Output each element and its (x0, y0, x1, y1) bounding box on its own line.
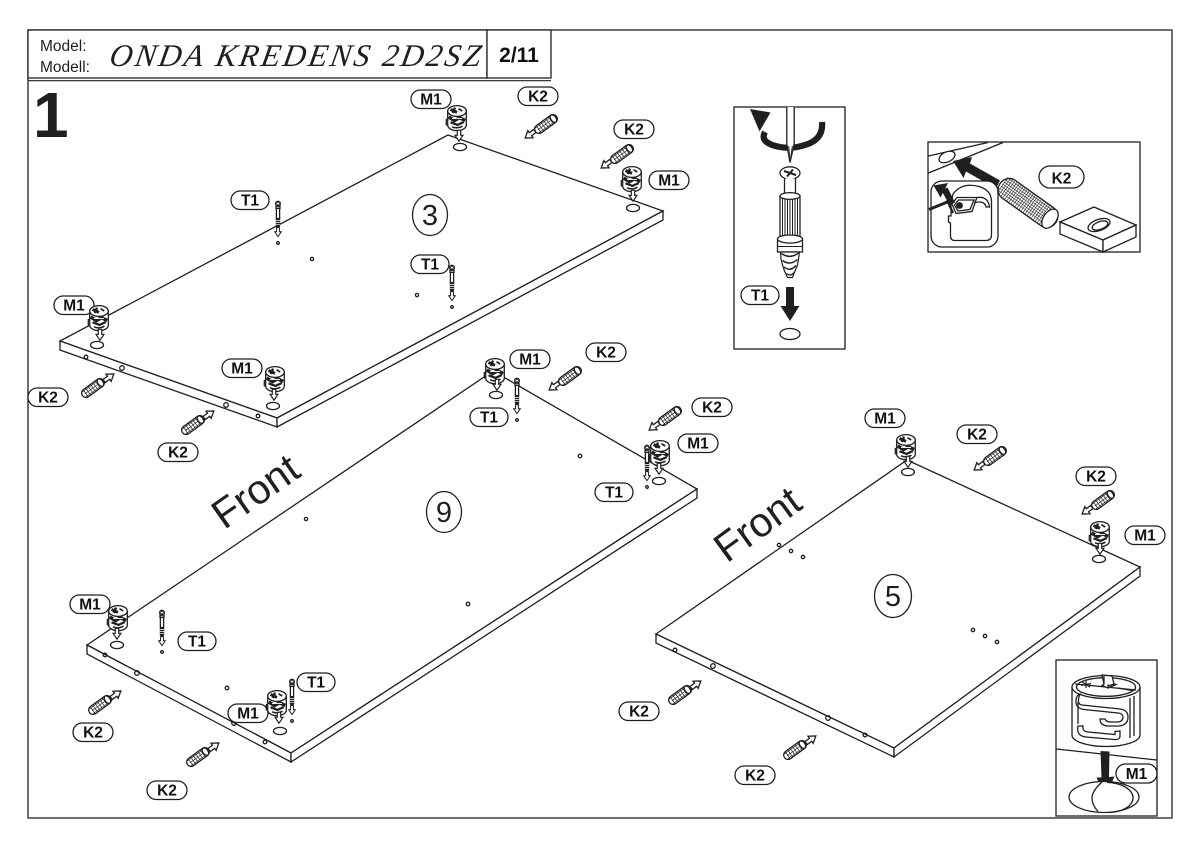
svg-text:K2: K2 (168, 445, 188, 462)
svg-text:M1: M1 (63, 298, 85, 315)
svg-text:K2: K2 (745, 768, 765, 785)
svg-text:M1: M1 (1134, 528, 1156, 545)
svg-text:T1: T1 (751, 288, 769, 305)
svg-text:M1: M1 (874, 411, 896, 428)
svg-text:M1: M1 (687, 436, 709, 453)
svg-text:K2: K2 (702, 400, 722, 417)
svg-text:M1: M1 (519, 352, 541, 369)
svg-text:T1: T1 (241, 193, 259, 210)
svg-text:K2: K2 (528, 89, 548, 106)
svg-text:K2: K2 (157, 783, 177, 800)
svg-text:T1: T1 (307, 675, 325, 692)
svg-text:5: 5 (885, 581, 901, 613)
svg-text:K2: K2 (967, 427, 987, 444)
svg-text:M1: M1 (1126, 766, 1148, 783)
svg-text:M1: M1 (658, 173, 680, 190)
svg-text:K2: K2 (1052, 171, 1072, 188)
svg-text:K2: K2 (629, 704, 649, 721)
svg-text:M1: M1 (231, 361, 253, 378)
svg-text:T1: T1 (421, 257, 439, 274)
svg-text:M1: M1 (79, 597, 101, 614)
svg-text:M1: M1 (420, 92, 442, 109)
svg-text:2/11: 2/11 (499, 44, 539, 67)
svg-text:K2: K2 (38, 390, 58, 407)
svg-text:9: 9 (436, 497, 452, 529)
svg-text:K2: K2 (1086, 469, 1106, 486)
svg-text:3: 3 (422, 200, 438, 232)
svg-text:K2: K2 (624, 122, 644, 139)
svg-text:K2: K2 (83, 725, 103, 742)
svg-text:K2: K2 (596, 345, 616, 362)
svg-text:Model:: Model: (40, 38, 87, 55)
svg-text:T1: T1 (188, 634, 206, 651)
svg-text:Modell:: Modell: (40, 59, 90, 76)
svg-text:1: 1 (33, 79, 69, 151)
svg-text:T1: T1 (605, 485, 623, 502)
svg-text:T1: T1 (480, 410, 498, 427)
svg-text:M1: M1 (237, 706, 259, 723)
svg-text:ONDA KREDENS 2D2SZ: ONDA KREDENS 2D2SZ (107, 38, 487, 73)
